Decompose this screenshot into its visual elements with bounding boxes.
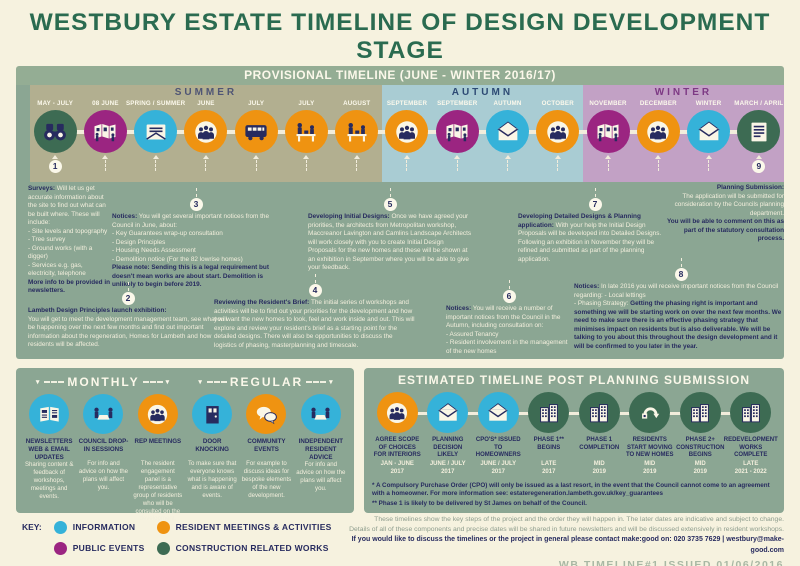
month-label: SEPTEMBER [387,100,427,109]
dashed-connector [708,160,709,171]
step-number-badge: 6 [503,290,516,303]
group-label: MONTHLY [67,375,139,389]
activity-circle [29,394,69,434]
note-badge-wrap: 2 [28,282,228,305]
timeline-item: OCTOBER [533,100,583,182]
meeting-table-icon [307,401,334,428]
key-dot [54,521,67,534]
step-number-badge: 2 [122,292,135,305]
season-band-autumn: AUTUMNSEPTEMBERSEPTEMBERAUTUMNOCTOBER [382,85,583,182]
post-item: PHASE 1 COMPLETIONMID 2019 [574,392,625,477]
timeline-item: MARCH / APRIL9 [734,100,784,182]
post-planning-panel: ESTIMATED TIMELINE POST PLANNING SUBMISS… [364,368,784,513]
activity-circle [138,394,178,434]
month-label: OCTOBER [542,100,574,109]
post-date: MID 2019 [694,461,707,477]
envelope-open-icon [493,117,523,147]
month-label: JUNE [197,100,214,109]
key-entry: CONSTRUCTION RELATED WORKS [157,541,332,555]
note-body: The initial series of workshops and acti… [214,299,415,349]
season-title: SUMMER [30,87,382,100]
month-label: WINTER [696,100,722,109]
note-title: Lambeth Design Principles launch exhibit… [28,307,167,314]
up-arrow-icon [555,155,561,159]
group-icon [543,117,573,147]
key-entry: PUBLIC EVENTS [54,541,145,555]
up-arrow-icon [203,155,209,159]
activity-item: REP MEETINGSThe resident engagement pane… [131,394,185,523]
step-number-badge: 1 [49,160,62,173]
dash-ornament [207,381,227,383]
timeline-circle [134,110,177,153]
footer-contact-line: If you would like to discuss the timelin… [344,535,784,556]
dashed-connector [356,160,357,171]
connector [706,155,712,171]
exhibition-icon [442,117,472,147]
note-title: Notices: [574,283,599,290]
season-items: SEPTEMBERSEPTEMBERAUTUMNOCTOBER [382,100,583,182]
buildings-icon [535,399,563,427]
dash-ornament [143,381,163,383]
connector [404,155,410,171]
note-title: Developing Initial Designs: [308,213,390,220]
timeline-item: NOVEMBER [583,100,633,182]
speech-bubbles-icon [253,401,280,428]
dashed-stub [196,188,197,197]
timeline-item: JUNE [181,100,231,182]
up-arrow-icon [404,155,410,159]
connector [454,155,460,171]
note-highlight: Getting the phasing right is important a… [574,300,781,350]
post-date: MID 2019 [593,461,606,477]
connector [354,155,360,171]
step-number-badge: 4 [309,284,322,297]
down-arrow-icon: ▾ [166,379,172,386]
timeline-item: SPRING / SUMMER [131,100,181,182]
post-date: LATE 2021 - 2022 [735,461,767,477]
month-label: AUGUST [343,100,370,109]
westbury-timeline-poster: WESTBURY ESTATE TIMELINE OF DESIGN DEVEL… [0,0,800,566]
note-badge-wrap: 4 [214,274,416,297]
timeline-item: 08 JUNE [80,100,130,182]
group-monthly: ▾MONTHLY▾NEWSLETTERS WEB & EMAIL UPDATES… [22,374,185,523]
dashed-connector [557,160,558,171]
post-item: PHASE 2+ CONSTRUCTION BEGINSMID 2019 [675,392,726,477]
key-col-2: RESIDENT MEETINGS & ACTIVITIESCONSTRUCTI… [157,520,332,555]
activity-circle [83,394,123,434]
activity-item: NEWSLETTERS WEB & EMAIL UPDATESSharing c… [22,394,76,523]
note-title: Planning Submission: [717,184,784,191]
step-number-badge: 7 [589,198,602,211]
bus-icon [241,117,271,147]
post-date: MID 2019 [643,461,656,477]
note-body: The application will be submitted for co… [675,193,784,217]
connector [253,155,259,171]
season-items: NOVEMBERDECEMBERWINTERMARCH / APRIL9 [583,100,784,182]
month-label: SPRING / SUMMER [126,100,185,109]
group-icon [383,399,411,427]
up-arrow-icon [153,155,159,159]
group-items: NEWSLETTERS WEB & EMAIL UPDATESSharing c… [22,394,185,523]
activity-circle [301,394,341,434]
key-label: RESIDENT MEETINGS & ACTIVITIES [176,520,332,534]
activity-desc: For info and advice on how the plans wil… [78,460,128,492]
dashed-stub [390,188,391,197]
timeline-circle [436,110,479,153]
month-label: JULY [298,100,314,109]
group-header: ▾REGULAR▾ [185,374,348,390]
envelope-open-icon [434,399,462,427]
provisional-timeline-section: PROVISIONAL TIMELINE (JUNE - WINTER 2016… [16,66,784,359]
up-arrow-icon [756,155,762,159]
footer-line-1: These timelines show the key steps of th… [344,515,784,525]
month-label: MAY - JULY [37,100,73,109]
dashed-connector [205,160,206,171]
footer-line-2: Details of all of these components and p… [344,525,784,535]
key-label: INFORMATION [73,520,136,534]
envelope-open-icon [484,399,512,427]
door-icon [199,401,226,428]
letter-icon [141,117,171,147]
note-lambeth-exhibition: 2 Lambeth Design Principles launch exhib… [28,282,228,350]
key-entry: RESIDENT MEETINGS & ACTIVITIES [157,520,332,534]
dashed-connector [507,160,508,171]
up-arrow-icon [655,155,661,159]
legend: KEY: INFORMATIONPUBLIC EVENTS RESIDENT M… [22,520,332,555]
dashed-connector [155,160,156,171]
note-title: Notices: [112,213,137,220]
season-title: WINTER [583,87,784,100]
timeline-circle [235,110,278,153]
up-arrow-icon [354,155,360,159]
note-badge-wrap: 8 [574,258,788,281]
post-label: REDEVELOPMENT WORKS COMPLETE [724,437,778,460]
activity-label: COUNCIL DROP-IN SESSIONS [78,438,128,460]
note-badge-wrap: 6 [446,280,572,303]
group-icon [643,117,673,147]
group-regular: ▾REGULAR▾DOOR KNOCKINGTo make sure that … [185,374,348,523]
note-body: You will get several important notices f… [112,213,269,263]
group-header: ▾MONTHLY▾ [22,374,185,390]
timeline-item: AUGUST [332,100,382,182]
dashed-connector [256,160,257,171]
post-circle [478,392,519,433]
note-detailed-designs: 7 Developing Detailed Designs & Planning… [518,188,672,264]
activity-item: DOOR KNOCKINGTo make sure that everyone … [185,394,239,500]
activity-label: NEWSLETTERS WEB & EMAIL UPDATES [24,438,74,461]
newspaper-icon [36,401,63,428]
dashed-stub [595,188,596,197]
buildings-icon [686,399,714,427]
dashed-connector [406,160,407,171]
group-label: REGULAR [230,375,303,389]
issue-stamp: WB TIMELINE#1 ISSUED 01/06/2016 [344,559,784,566]
post-circle [629,392,670,433]
timeline-circle [536,110,579,153]
monthly-regular-panel: ▾MONTHLY▾NEWSLETTERS WEB & EMAIL UPDATES… [16,368,354,513]
timeline-item: SEPTEMBER [432,100,482,182]
activity-desc: For info and advice on how the plans wil… [296,461,346,493]
note-highlight: You will be able to comment on this as p… [667,218,784,242]
step-number-badge: 5 [384,198,397,211]
note-body: You will receive a number of important n… [446,305,568,355]
pre-summer-strip [16,85,30,182]
post-label: CPO'S* ISSUED TO HOMEOWNERS [474,437,523,460]
dashed-stub [681,258,682,267]
monthly-regular-groups: ▾MONTHLY▾NEWSLETTERS WEB & EMAIL UPDATES… [22,374,348,523]
connector [303,155,309,171]
dashed-connector [457,160,458,171]
step-number-badge: 3 [190,198,203,211]
timeline-item: SEPTEMBER [382,100,432,182]
post-label: RESIDENTS START MOVING TO NEW HOMES [626,437,675,460]
dashed-stub [509,280,510,289]
step-number-badge: 9 [752,160,765,173]
season-band-summer: SUMMERMAY - JULY108 JUNESPRING / SUMMERJ… [30,85,382,182]
page-title: WESTBURY ESTATE TIMELINE OF DESIGN DEVEL… [0,9,800,65]
post-item: REDEVELOPMENT WORKS COMPLETELATE 2021 - … [726,392,777,477]
note-notices-late-2016: 8 Notices: In late 2016 you will receive… [574,258,788,351]
post-planning-items: AGREE SCOPE OF CHOICES FOR INTERIORSJAN … [372,392,776,477]
post-label: PLANNING DECISION LIKELY [424,437,473,460]
month-label: DECEMBER [640,100,677,109]
note-badge-wrap: 3 [112,188,280,211]
timeline-circle [737,110,780,153]
note-residents-brief: 4 Reviewing the Resident's Brief: The in… [214,274,416,350]
group-icon [392,117,422,147]
meeting-table-icon [90,401,117,428]
post-label: PHASE 1 COMPLETION [575,437,624,460]
timeline-item: MAY - JULY1 [30,100,80,182]
activity-label: COMMUNITY EVENTS [241,438,291,460]
connector [605,155,611,171]
timeline-circle [687,110,730,153]
season-title: AUTUMN [382,87,583,100]
post-date: LATE 2017 [541,461,556,477]
group-icon [144,401,171,428]
activity-item: COUNCIL DROP-IN SESSIONSFor info and adv… [76,394,130,523]
timeline-circle [285,110,328,153]
timeline-circle [385,110,428,153]
up-arrow-icon [454,155,460,159]
post-item: AGREE SCOPE OF CHOICES FOR INTERIORSJAN … [372,392,423,477]
activity-label: DOOR KNOCKING [187,438,237,460]
connector [102,155,108,171]
key-dot [157,521,170,534]
timeline-circle [84,110,127,153]
activity-circle [192,394,232,434]
up-arrow-icon [505,155,511,159]
note-planning-submission: Planning Submission: The application wil… [666,184,784,244]
envelope-open-icon [694,117,724,147]
dash-ornament [44,381,64,383]
dashed-stub [128,282,129,291]
up-arrow-icon [605,155,611,159]
note-initial-designs: 5 Developing Initial Designs: Once we ha… [308,188,472,273]
month-label: AUTUMN [494,100,522,109]
connector: 1 [49,155,62,173]
timeline-item: AUTUMN [482,100,532,182]
binoculars-icon [40,117,70,147]
activity-desc: The resident engagement panel is a repre… [133,460,183,523]
post-circle [579,392,620,433]
post-item: CPO'S* ISSUED TO HOMEOWNERSJUNE / JULY 2… [473,392,524,477]
cpo-footnote: * A Compulsory Purchase Order (CPO) will… [372,482,776,499]
post-planning-title: ESTIMATED TIMELINE POST PLANNING SUBMISS… [372,373,776,389]
note-body: Once we have agreed your priorities, the… [308,213,471,271]
key-label: CONSTRUCTION RELATED WORKS [176,541,329,555]
activity-label: REP MEETINGS [134,438,181,460]
month-label: 08 JUNE [92,100,119,109]
activity-item: INDEPENDENT RESIDENT ADVICEFor info and … [294,394,348,500]
note-body: Will let us get accurate information abo… [28,185,107,277]
exhibition-icon [90,117,120,147]
post-date: JUNE / JULY 2017 [480,461,516,477]
up-arrow-icon [706,155,712,159]
note-notices-autumn: 6 Notices: You will receive a number of … [446,280,572,356]
note-title: Surveys: [28,185,55,192]
dash-ornament [306,381,326,383]
season-band-winter: WINTERNOVEMBERDECEMBERWINTERMARCH / APRI… [583,85,784,182]
dashed-connector [306,160,307,171]
timeline-circle [184,110,227,153]
key-dot [157,542,170,555]
activity-item: COMMUNITY EVENTSFor example to discuss i… [239,394,293,500]
note-title: Notices: [446,305,471,312]
moving-arrow-icon [636,399,664,427]
post-label: PHASE 2+ CONSTRUCTION BEGINS [676,437,725,460]
post-date: JUNE / JULY 2017 [430,461,466,477]
timeline-circle [34,110,77,153]
phase1-footnote: ** Phase 1 is likely to be delivered by … [372,500,776,509]
post-circle [680,392,721,433]
activity-circle [246,394,286,434]
timeline-circle [486,110,529,153]
document-icon [744,117,774,147]
note-badge-wrap: 7 [518,188,672,211]
month-label: JULY [248,100,264,109]
post-circle [427,392,468,433]
dashed-connector [105,160,106,171]
note-surveys: Surveys: Will let us get accurate inform… [28,185,112,296]
post-item: RESIDENTS START MOVING TO NEW HOMESMID 2… [625,392,676,477]
key-col-1: INFORMATIONPUBLIC EVENTS [54,520,145,555]
connector [203,155,209,171]
footer: These timelines show the key steps of th… [344,515,784,566]
seasons-row: SUMMERMAY - JULY108 JUNESPRING / SUMMERJ… [16,85,784,182]
buildings-icon [585,399,613,427]
connector: 9 [752,155,765,173]
up-arrow-icon [253,155,259,159]
connector [555,155,561,171]
note-title: Reviewing the Resident's Brief: [214,299,309,306]
timeline-item: WINTER [683,100,733,182]
note-badge-wrap: 5 [308,188,472,211]
month-label: MARCH / APRIL [734,100,783,109]
dashed-stub [315,274,316,283]
month-label: SEPTEMBER [437,100,477,109]
key-label: PUBLIC EVENTS [73,541,145,555]
exhibition-icon [593,117,623,147]
up-arrow-icon [303,155,309,159]
buildings-icon [737,399,765,427]
activity-desc: For example to discuss ideas for bespoke… [241,460,291,500]
month-label: NOVEMBER [589,100,626,109]
key-entry: INFORMATION [54,520,145,534]
legend-title: KEY: [22,520,42,534]
connector [655,155,661,171]
post-date: JAN - JUNE 2017 [381,461,414,477]
post-label: AGREE SCOPE OF CHOICES FOR INTERIORS [373,437,422,460]
activity-desc: To make sure that everyone knows what is… [187,460,237,500]
timeline-circle [335,110,378,153]
post-circle [528,392,569,433]
provisional-timeline-header: PROVISIONAL TIMELINE (JUNE - WINTER 2016… [16,66,784,85]
season-items: MAY - JULY108 JUNESPRING / SUMMERJUNEJUL… [30,100,382,182]
post-circle [377,392,418,433]
group-icon [191,117,221,147]
down-arrow-icon: ▾ [329,379,335,386]
timeline-item: JULY [281,100,331,182]
timeline-item: DECEMBER [633,100,683,182]
post-item: PHASE 1** BEGINSLATE 2017 [524,392,575,477]
activity-desc: Sharing content & feedback of workshops,… [24,461,74,501]
dashed-connector [608,160,609,171]
connector [505,155,511,171]
step-number-badge: 8 [675,268,688,281]
post-circle [730,392,771,433]
down-arrow-icon: ▾ [198,379,204,386]
connector [153,155,159,171]
workshop-icon [342,117,372,147]
down-arrow-icon: ▾ [36,379,42,386]
timeline-circle [587,110,630,153]
dashed-connector [658,160,659,171]
post-item: PLANNING DECISION LIKELYJUNE / JULY 2017 [423,392,474,477]
post-label: PHASE 1** BEGINS [525,437,574,460]
key-dot [54,542,67,555]
note-body: You will get to meet the development man… [28,316,227,349]
workshop-icon [291,117,321,147]
up-arrow-icon [102,155,108,159]
timeline-item: JULY [231,100,281,182]
up-arrow-icon [52,155,58,159]
group-items: DOOR KNOCKINGTo make sure that everyone … [185,394,348,500]
timeline-notes-panel: Surveys: Will let us get accurate inform… [16,182,784,359]
timeline-circle [637,110,680,153]
activity-label: INDEPENDENT RESIDENT ADVICE [296,438,346,461]
